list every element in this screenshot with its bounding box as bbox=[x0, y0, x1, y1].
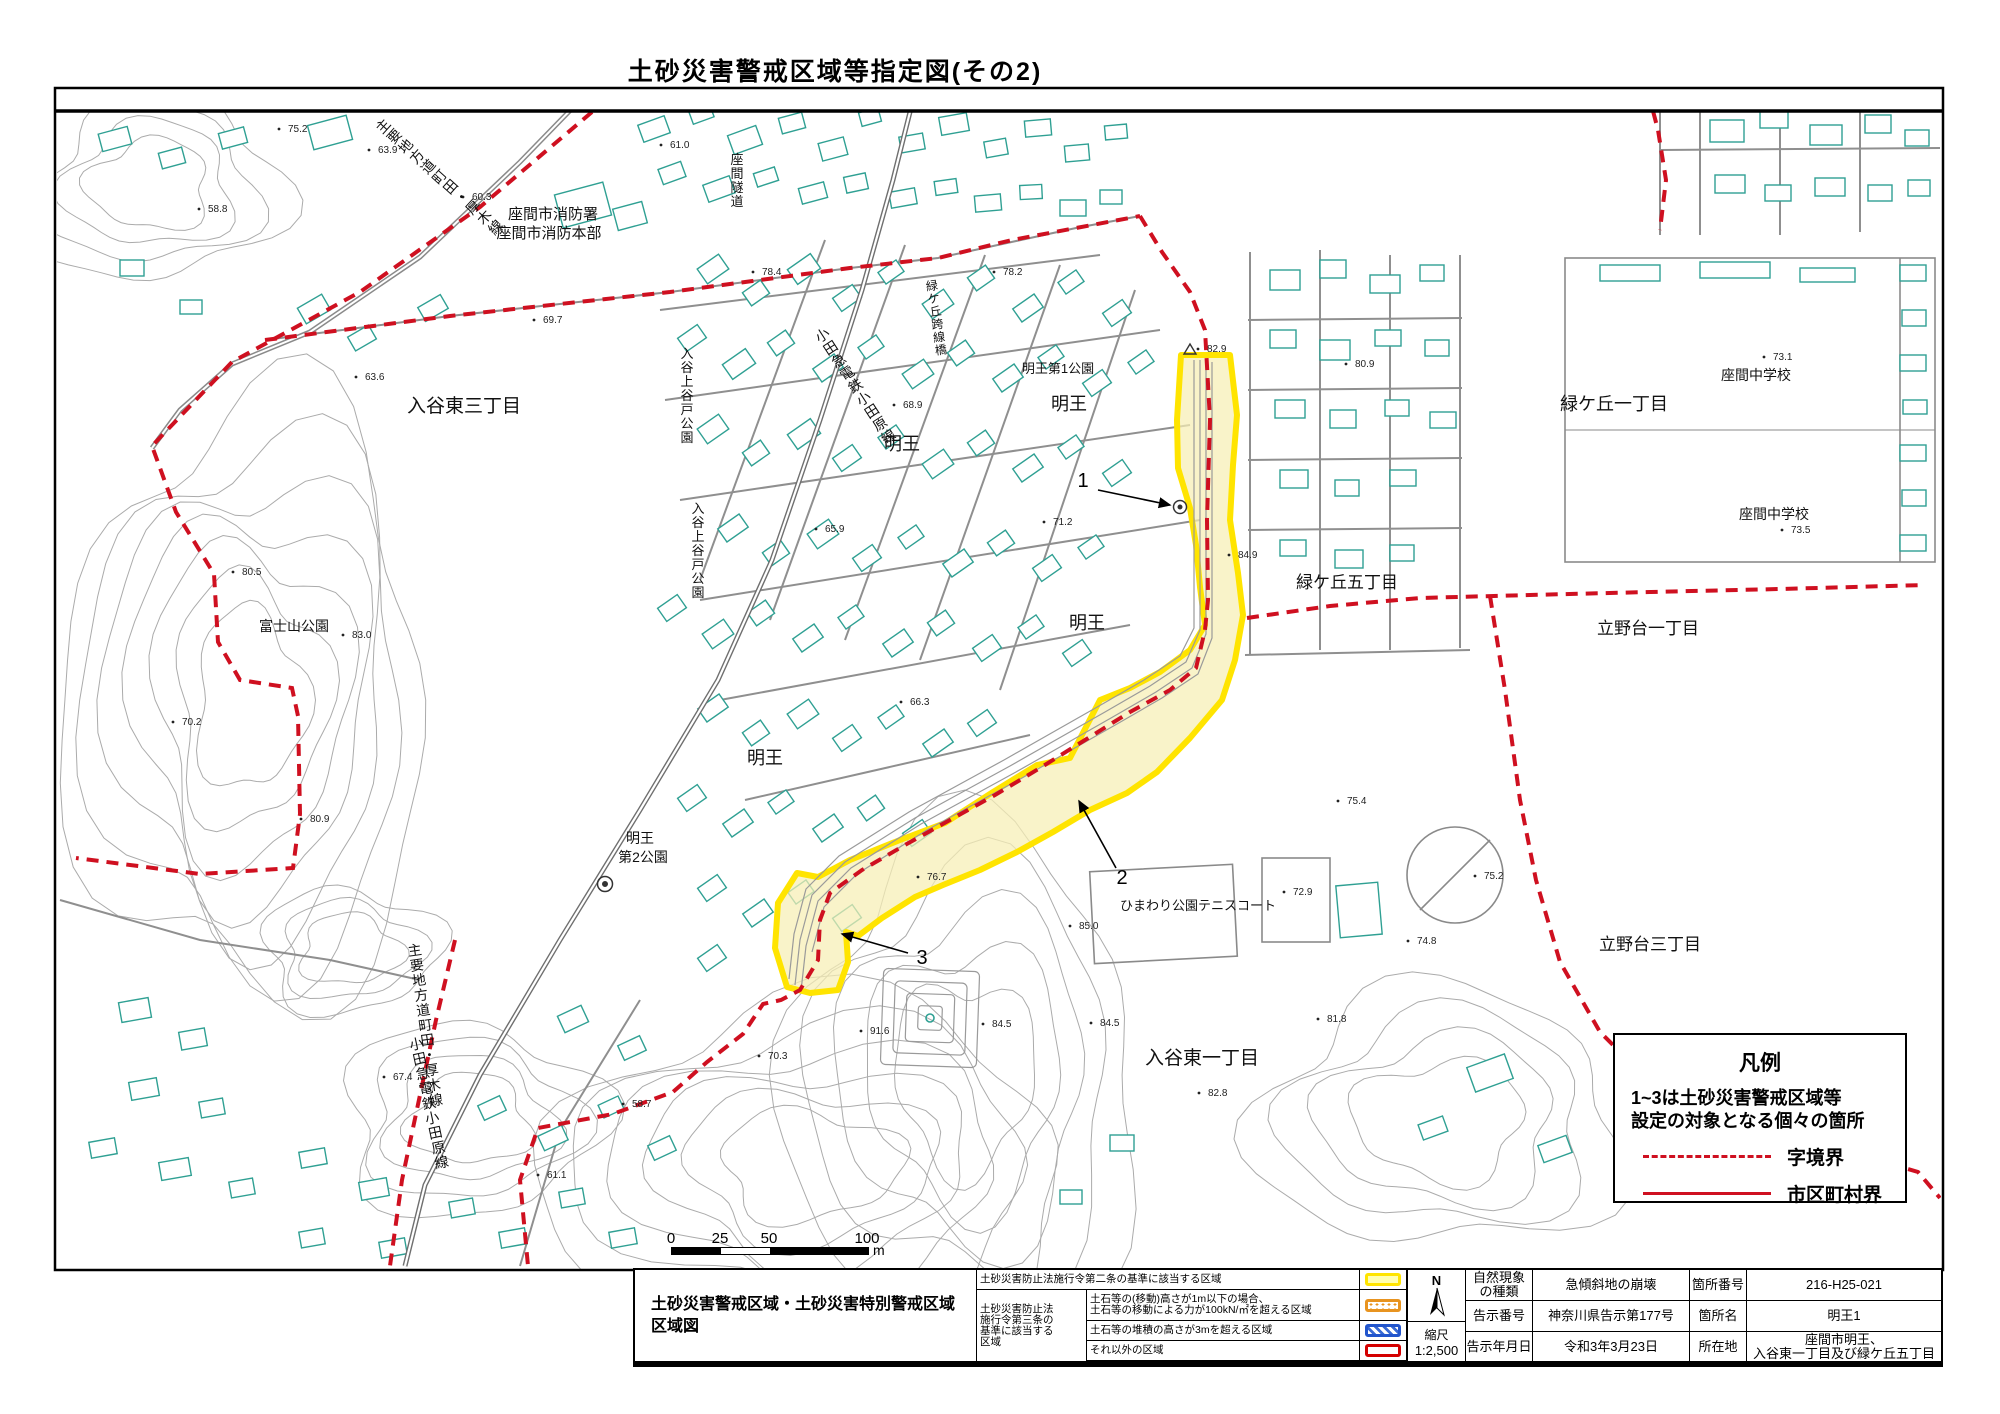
scale-bar-ticks: 0 25 50 100 bbox=[663, 1230, 893, 1247]
building bbox=[159, 1158, 192, 1181]
building bbox=[727, 125, 762, 154]
row2-desc: 土石等の(移動)高さが1m以下の場合、 土石等の移動による力が100kN/㎡を超… bbox=[1087, 1290, 1360, 1321]
building bbox=[120, 260, 144, 276]
building bbox=[1467, 1054, 1513, 1092]
area-label: 明王 bbox=[747, 748, 783, 768]
building bbox=[1425, 340, 1449, 356]
building bbox=[987, 530, 1014, 556]
building bbox=[1018, 615, 1044, 639]
building bbox=[1320, 340, 1350, 360]
area-label: 座間中学校 bbox=[1721, 367, 1791, 383]
elevation-label: 78.4 bbox=[762, 267, 782, 278]
building bbox=[993, 364, 1023, 392]
building bbox=[98, 126, 132, 151]
building bbox=[939, 113, 970, 136]
scale-bar: 0 25 50 100 m bbox=[663, 1230, 893, 1262]
elevation-label: 61.0 bbox=[670, 140, 690, 151]
area-label: 緑ケ丘一丁目 bbox=[1560, 394, 1668, 414]
site-name-label: 箇所名 bbox=[1689, 1301, 1746, 1332]
building bbox=[1903, 400, 1927, 414]
building bbox=[199, 1098, 225, 1118]
area-label: 入谷東一丁目 bbox=[1145, 1047, 1259, 1069]
building bbox=[1765, 185, 1791, 201]
site-name-value: 明王1 bbox=[1746, 1301, 1941, 1332]
elevation-label: 78.2 bbox=[1003, 267, 1023, 278]
building bbox=[1420, 265, 1444, 281]
area-label: 主要地方道町田・厚木線 bbox=[372, 116, 506, 238]
building bbox=[1370, 275, 1400, 293]
building bbox=[1900, 535, 1926, 551]
building bbox=[793, 624, 823, 652]
notice-number-label: 告示番号 bbox=[1466, 1301, 1532, 1332]
building bbox=[1900, 355, 1926, 371]
scale-bar-strip bbox=[671, 1247, 869, 1255]
building bbox=[1815, 178, 1845, 196]
elevation-label: 80.9 bbox=[1355, 359, 1375, 370]
building bbox=[1335, 480, 1359, 496]
building bbox=[1103, 460, 1132, 487]
building bbox=[818, 137, 848, 161]
terraced-hill bbox=[880, 968, 979, 1067]
elevation-label: 84.5 bbox=[1100, 1018, 1120, 1029]
elevation-label: 76.7 bbox=[927, 872, 947, 883]
building bbox=[299, 1148, 327, 1168]
building bbox=[798, 182, 827, 204]
building bbox=[898, 525, 924, 549]
building bbox=[618, 1036, 647, 1061]
building bbox=[609, 1228, 637, 1248]
location-value: 座間市明王、入谷東一丁目及び緑ケ丘五丁目 bbox=[1746, 1332, 1941, 1361]
building bbox=[499, 1228, 527, 1248]
elevation-label: 58.8 bbox=[208, 204, 228, 215]
building bbox=[927, 610, 954, 636]
location-label: 所在地 bbox=[1689, 1332, 1746, 1361]
building bbox=[158, 147, 185, 169]
building bbox=[967, 430, 994, 456]
building bbox=[722, 349, 755, 380]
building bbox=[1270, 330, 1296, 348]
elevation-label: 73.1 bbox=[1773, 352, 1793, 363]
scale-value: 1:2,500 bbox=[1415, 1343, 1458, 1358]
building bbox=[1104, 124, 1127, 140]
marker-number-3: 3 bbox=[916, 947, 927, 969]
site-number-label: 箇所番号 bbox=[1689, 1270, 1746, 1301]
building bbox=[179, 1028, 208, 1050]
elevation-label: 75.2 bbox=[1484, 871, 1504, 882]
building bbox=[1013, 454, 1043, 482]
elevation-label: 67.4 bbox=[393, 1072, 413, 1083]
north-arrow-icon bbox=[1428, 1287, 1446, 1317]
building bbox=[557, 1005, 588, 1032]
row4-desc: それ以外の区域 bbox=[1087, 1341, 1360, 1361]
building bbox=[1013, 294, 1043, 322]
area-label: 入谷上谷戸公園 bbox=[680, 346, 693, 445]
building bbox=[1033, 555, 1062, 582]
building bbox=[180, 300, 202, 314]
scale-label: 縮尺 bbox=[1424, 1326, 1448, 1343]
building bbox=[89, 1138, 117, 1158]
elevation-label: 58.7 bbox=[632, 1099, 652, 1110]
building bbox=[889, 188, 917, 208]
building bbox=[697, 254, 729, 284]
building bbox=[1270, 270, 1300, 290]
elevation-label: 68.9 bbox=[903, 400, 923, 411]
building bbox=[449, 1198, 475, 1218]
special-zone-deposit-swatch bbox=[1365, 1324, 1401, 1337]
building bbox=[1715, 175, 1745, 193]
building bbox=[742, 720, 769, 746]
elevation-label: 70.3 bbox=[768, 1051, 788, 1062]
building bbox=[1024, 119, 1051, 137]
building bbox=[698, 945, 727, 972]
building bbox=[1060, 1190, 1082, 1204]
notice-info-grid: 自然現象の種類 急傾斜地の崩壊 箇所番号 216-H25-021 告示番号 神奈… bbox=[1465, 1270, 1941, 1361]
notice-date-value: 令和3年3月23日 bbox=[1532, 1332, 1689, 1361]
building bbox=[1865, 115, 1891, 133]
building bbox=[1385, 400, 1409, 416]
north-label: N bbox=[1432, 1275, 1441, 1287]
elevation-label: 80.5 bbox=[242, 567, 262, 578]
building bbox=[1280, 470, 1308, 488]
building bbox=[1320, 260, 1346, 278]
building bbox=[1900, 445, 1926, 461]
building bbox=[1902, 310, 1926, 326]
warning-zone-swatch bbox=[1365, 1273, 1401, 1286]
building bbox=[1060, 200, 1086, 216]
building bbox=[1275, 400, 1305, 418]
building bbox=[218, 127, 247, 149]
building bbox=[723, 809, 753, 837]
building bbox=[638, 116, 670, 142]
area-label: 明王 bbox=[1051, 394, 1087, 414]
building bbox=[688, 102, 714, 125]
legend-row-solid: 市区町村界 bbox=[1643, 1180, 1905, 1207]
building bbox=[844, 173, 869, 193]
marker-number-2: 2 bbox=[1116, 867, 1127, 889]
elevation-label: 84.5 bbox=[992, 1019, 1012, 1030]
building bbox=[1810, 125, 1842, 145]
building bbox=[129, 1078, 160, 1101]
building bbox=[702, 619, 734, 649]
building bbox=[778, 112, 805, 134]
map-info-table: 土砂災害警戒区域・土砂災害特別警戒区域 区域図 土砂災害防止法施行令第二条の基準… bbox=[633, 1268, 1943, 1367]
elevation-label: 63.6 bbox=[365, 372, 385, 383]
building bbox=[922, 449, 954, 479]
area-label: 小田急電鉄小田原線 bbox=[812, 325, 898, 447]
notice-date-label: 告示年月日 bbox=[1466, 1332, 1532, 1361]
area-label: 座間中学校 bbox=[1739, 506, 1809, 522]
building bbox=[1390, 470, 1416, 486]
building bbox=[1418, 1116, 1448, 1140]
legend-box: 凡例 1~3は土砂災害警戒区域等 設定の対象となる個々の箇所 字境界 市区町村界 bbox=[1613, 1033, 1907, 1203]
marker-number-1: 1 bbox=[1077, 470, 1088, 492]
building bbox=[1375, 330, 1401, 346]
building bbox=[1902, 490, 1926, 506]
marker-arrow-3 bbox=[842, 934, 908, 953]
elevation-label: 82.8 bbox=[1208, 1088, 1228, 1099]
area-label: 明王 bbox=[626, 830, 654, 846]
elevation-label: 74.8 bbox=[1417, 936, 1437, 947]
area-label: 緑ケ丘五丁目 bbox=[1296, 573, 1398, 592]
building bbox=[1700, 262, 1770, 278]
building bbox=[1868, 185, 1892, 201]
building bbox=[878, 705, 904, 729]
building bbox=[658, 161, 686, 184]
building bbox=[1330, 410, 1356, 428]
area-label: ひまわり公園テニスコート bbox=[1120, 898, 1276, 913]
building bbox=[787, 699, 819, 729]
area-label: 第2公園 bbox=[618, 849, 668, 865]
building bbox=[984, 138, 1008, 158]
area-label: 明王 bbox=[1069, 613, 1105, 633]
building bbox=[697, 414, 729, 444]
building bbox=[947, 340, 974, 366]
area-label: 座間市消防署 bbox=[508, 206, 598, 223]
building bbox=[1800, 268, 1855, 282]
elevation-label: 69.7 bbox=[543, 315, 563, 326]
elevation-label: 75.4 bbox=[1347, 796, 1367, 807]
building bbox=[1905, 130, 1929, 146]
phenomenon-value: 急傾斜地の崩壊 bbox=[1532, 1270, 1689, 1301]
elevation-label: 84.9 bbox=[1238, 550, 1258, 561]
north-scale-cell: N 縮尺 1:2,500 bbox=[1407, 1270, 1465, 1361]
elevation-label: 85.0 bbox=[1079, 921, 1099, 932]
building bbox=[838, 605, 864, 629]
building bbox=[1908, 180, 1930, 196]
building bbox=[1058, 270, 1084, 294]
building bbox=[678, 785, 707, 812]
area-label: 入谷上谷戸公園 bbox=[691, 501, 704, 600]
building bbox=[742, 280, 769, 306]
other-zone-swatch bbox=[1365, 1344, 1401, 1357]
area-label: 立野台三丁目 bbox=[1599, 935, 1701, 954]
building bbox=[118, 998, 151, 1023]
building bbox=[973, 635, 1002, 662]
building bbox=[858, 335, 884, 359]
building bbox=[1128, 350, 1154, 374]
legend-note: 1~3は土砂災害警戒区域等 設定の対象となる個々の箇所 bbox=[1631, 1087, 1905, 1133]
area-label: 立野台一丁目 bbox=[1597, 619, 1699, 638]
site-number-value: 216-H25-021 bbox=[1746, 1270, 1941, 1301]
special-zone-move-swatch bbox=[1365, 1299, 1401, 1312]
building bbox=[943, 549, 973, 577]
building bbox=[559, 1188, 585, 1208]
building bbox=[1336, 882, 1382, 937]
building bbox=[753, 167, 778, 187]
main-road bbox=[152, 92, 588, 448]
building bbox=[1600, 265, 1660, 281]
dashed-line-sample bbox=[1643, 1155, 1771, 1158]
elevation-label: 75.2 bbox=[288, 124, 308, 135]
legend-row-dashed: 字境界 bbox=[1643, 1143, 1905, 1170]
elevation-label: 83.0 bbox=[352, 630, 372, 641]
building bbox=[1335, 550, 1363, 568]
elevation-label: 91.6 bbox=[870, 1026, 890, 1037]
building bbox=[833, 725, 862, 752]
building bbox=[883, 629, 913, 657]
building bbox=[974, 194, 1001, 212]
building bbox=[1110, 1135, 1134, 1151]
elevation-label: 65.9 bbox=[825, 524, 845, 535]
building bbox=[359, 1178, 390, 1201]
area-label: 座間隧道 bbox=[730, 152, 743, 209]
building bbox=[1538, 1135, 1572, 1162]
building bbox=[1100, 190, 1122, 204]
zone-legend: 土砂災害防止法施行令第二条の基準に該当する区域 土砂災害防止法 施行令第三条の … bbox=[977, 1270, 1407, 1361]
building bbox=[853, 545, 882, 572]
building bbox=[968, 710, 997, 737]
law3-label: 土砂災害防止法 施行令第三条の 基準に該当する 区域 bbox=[977, 1290, 1087, 1361]
building bbox=[1390, 545, 1414, 561]
building bbox=[1020, 184, 1043, 199]
elevation-label: 70.2 bbox=[182, 717, 202, 728]
building bbox=[1430, 412, 1456, 428]
building bbox=[813, 814, 843, 842]
building bbox=[787, 254, 820, 285]
building bbox=[307, 115, 352, 150]
building bbox=[1064, 144, 1089, 162]
marker-arrow-1 bbox=[1098, 490, 1170, 505]
building bbox=[742, 440, 769, 466]
area-label: 入谷東三丁目 bbox=[407, 395, 521, 417]
marker-arrow-2 bbox=[1079, 801, 1116, 868]
building bbox=[698, 875, 727, 902]
boundary-dashed-line bbox=[265, 216, 1140, 340]
elevation-label: 61.1 bbox=[547, 1170, 567, 1181]
elevation-label: 82.9 bbox=[1207, 344, 1227, 355]
row3-desc: 土石等の堆積の高さが3mを超える区域 bbox=[1087, 1321, 1360, 1341]
building bbox=[613, 201, 648, 230]
area-label: 明王 bbox=[884, 434, 920, 454]
building bbox=[1710, 120, 1744, 142]
building bbox=[1280, 540, 1306, 556]
phenomenon-label: 自然現象の種類 bbox=[1466, 1270, 1532, 1301]
map-sheet-title: 土砂災害警戒区域・土砂災害特別警戒区域 区域図 bbox=[635, 1270, 977, 1361]
building bbox=[833, 445, 862, 472]
legend-title: 凡例 bbox=[1615, 1047, 1905, 1077]
building bbox=[658, 595, 687, 622]
building bbox=[299, 1228, 325, 1248]
notice-number-value: 神奈川県告示第177号 bbox=[1532, 1301, 1689, 1332]
elevation-label: 66.3 bbox=[910, 697, 930, 708]
building bbox=[743, 899, 773, 927]
solid-line-sample bbox=[1643, 1192, 1771, 1195]
building bbox=[229, 1178, 255, 1198]
building bbox=[1900, 265, 1926, 281]
area-label: 明王第1公園 bbox=[1022, 361, 1094, 376]
building bbox=[478, 1096, 507, 1121]
area-label: 座間市消防本部 bbox=[496, 225, 601, 242]
building bbox=[1103, 300, 1132, 327]
elevation-label: 81.8 bbox=[1327, 1014, 1347, 1025]
building bbox=[857, 795, 884, 821]
elevation-label: 80.9 bbox=[310, 814, 330, 825]
elevation-label: 72.9 bbox=[1293, 887, 1313, 898]
area-label: 富士山公園 bbox=[259, 618, 329, 634]
elevation-label: 73.5 bbox=[1791, 525, 1811, 536]
building bbox=[1063, 640, 1092, 667]
swatch-yellow-cell bbox=[1360, 1270, 1407, 1290]
elevation-label: 71.2 bbox=[1053, 517, 1073, 528]
building bbox=[934, 179, 958, 196]
